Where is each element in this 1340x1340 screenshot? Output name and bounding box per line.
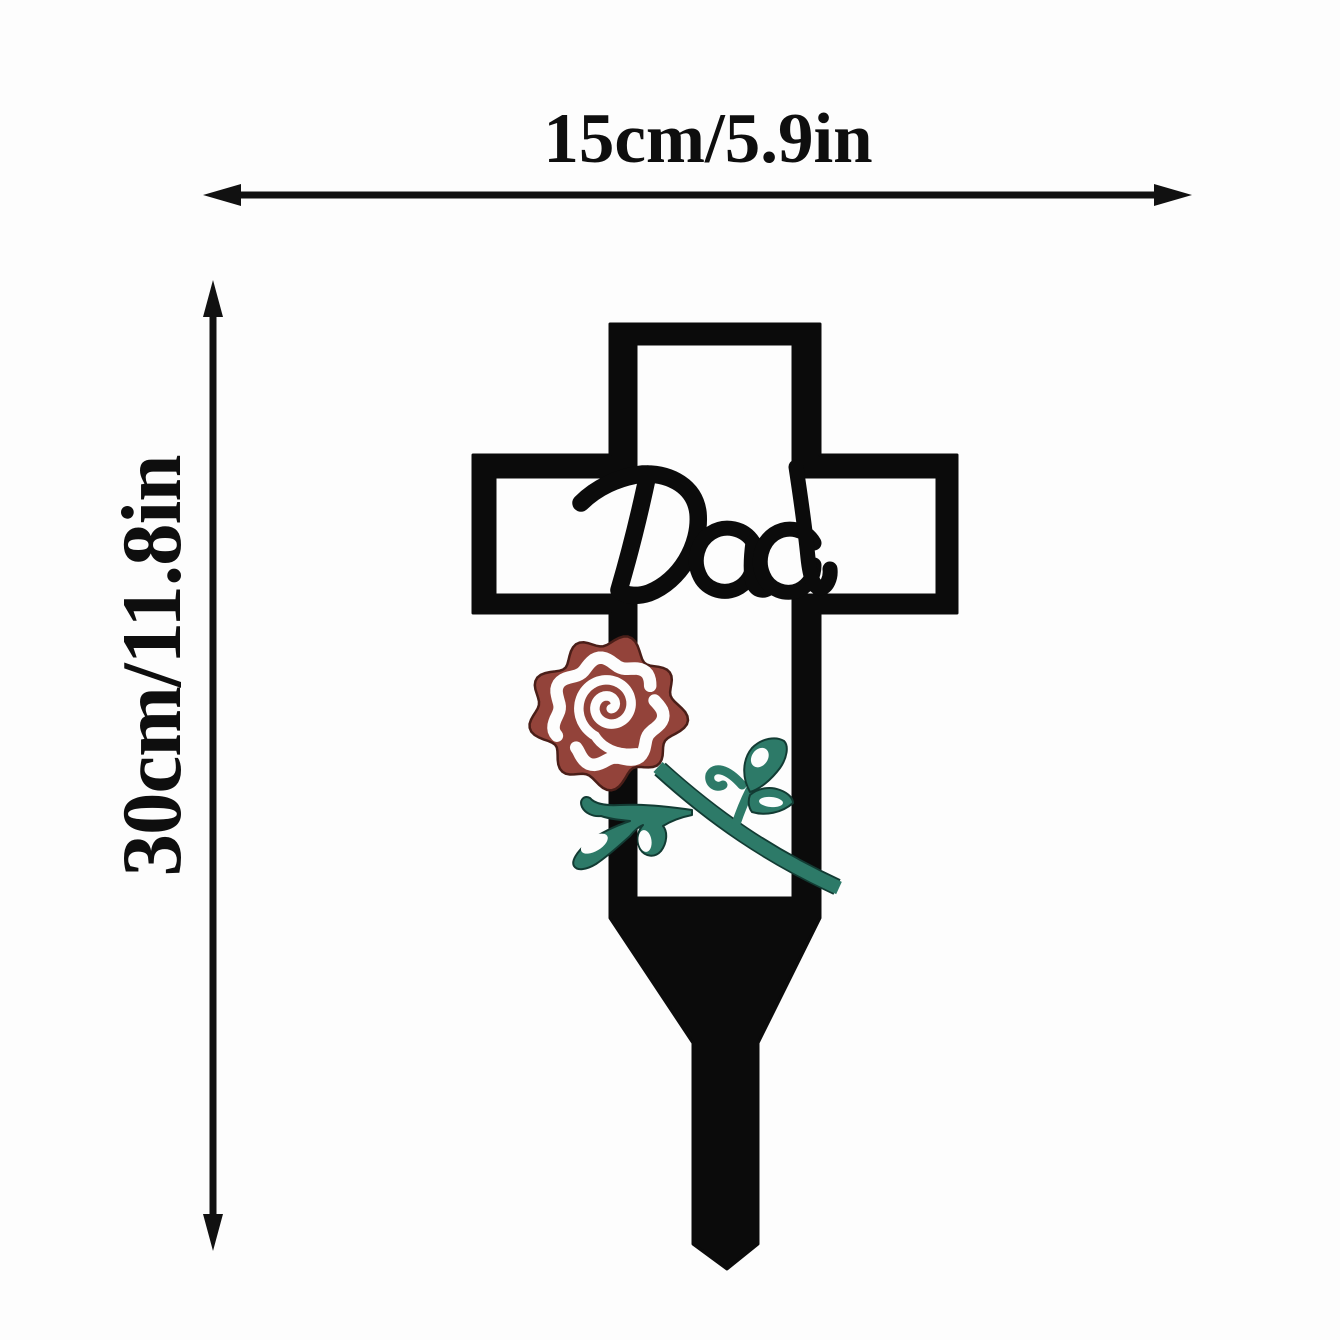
svg-text:30cm/11.8in: 30cm/11.8in	[105, 455, 199, 876]
svg-text:15cm/5.9in: 15cm/5.9in	[543, 100, 872, 178]
